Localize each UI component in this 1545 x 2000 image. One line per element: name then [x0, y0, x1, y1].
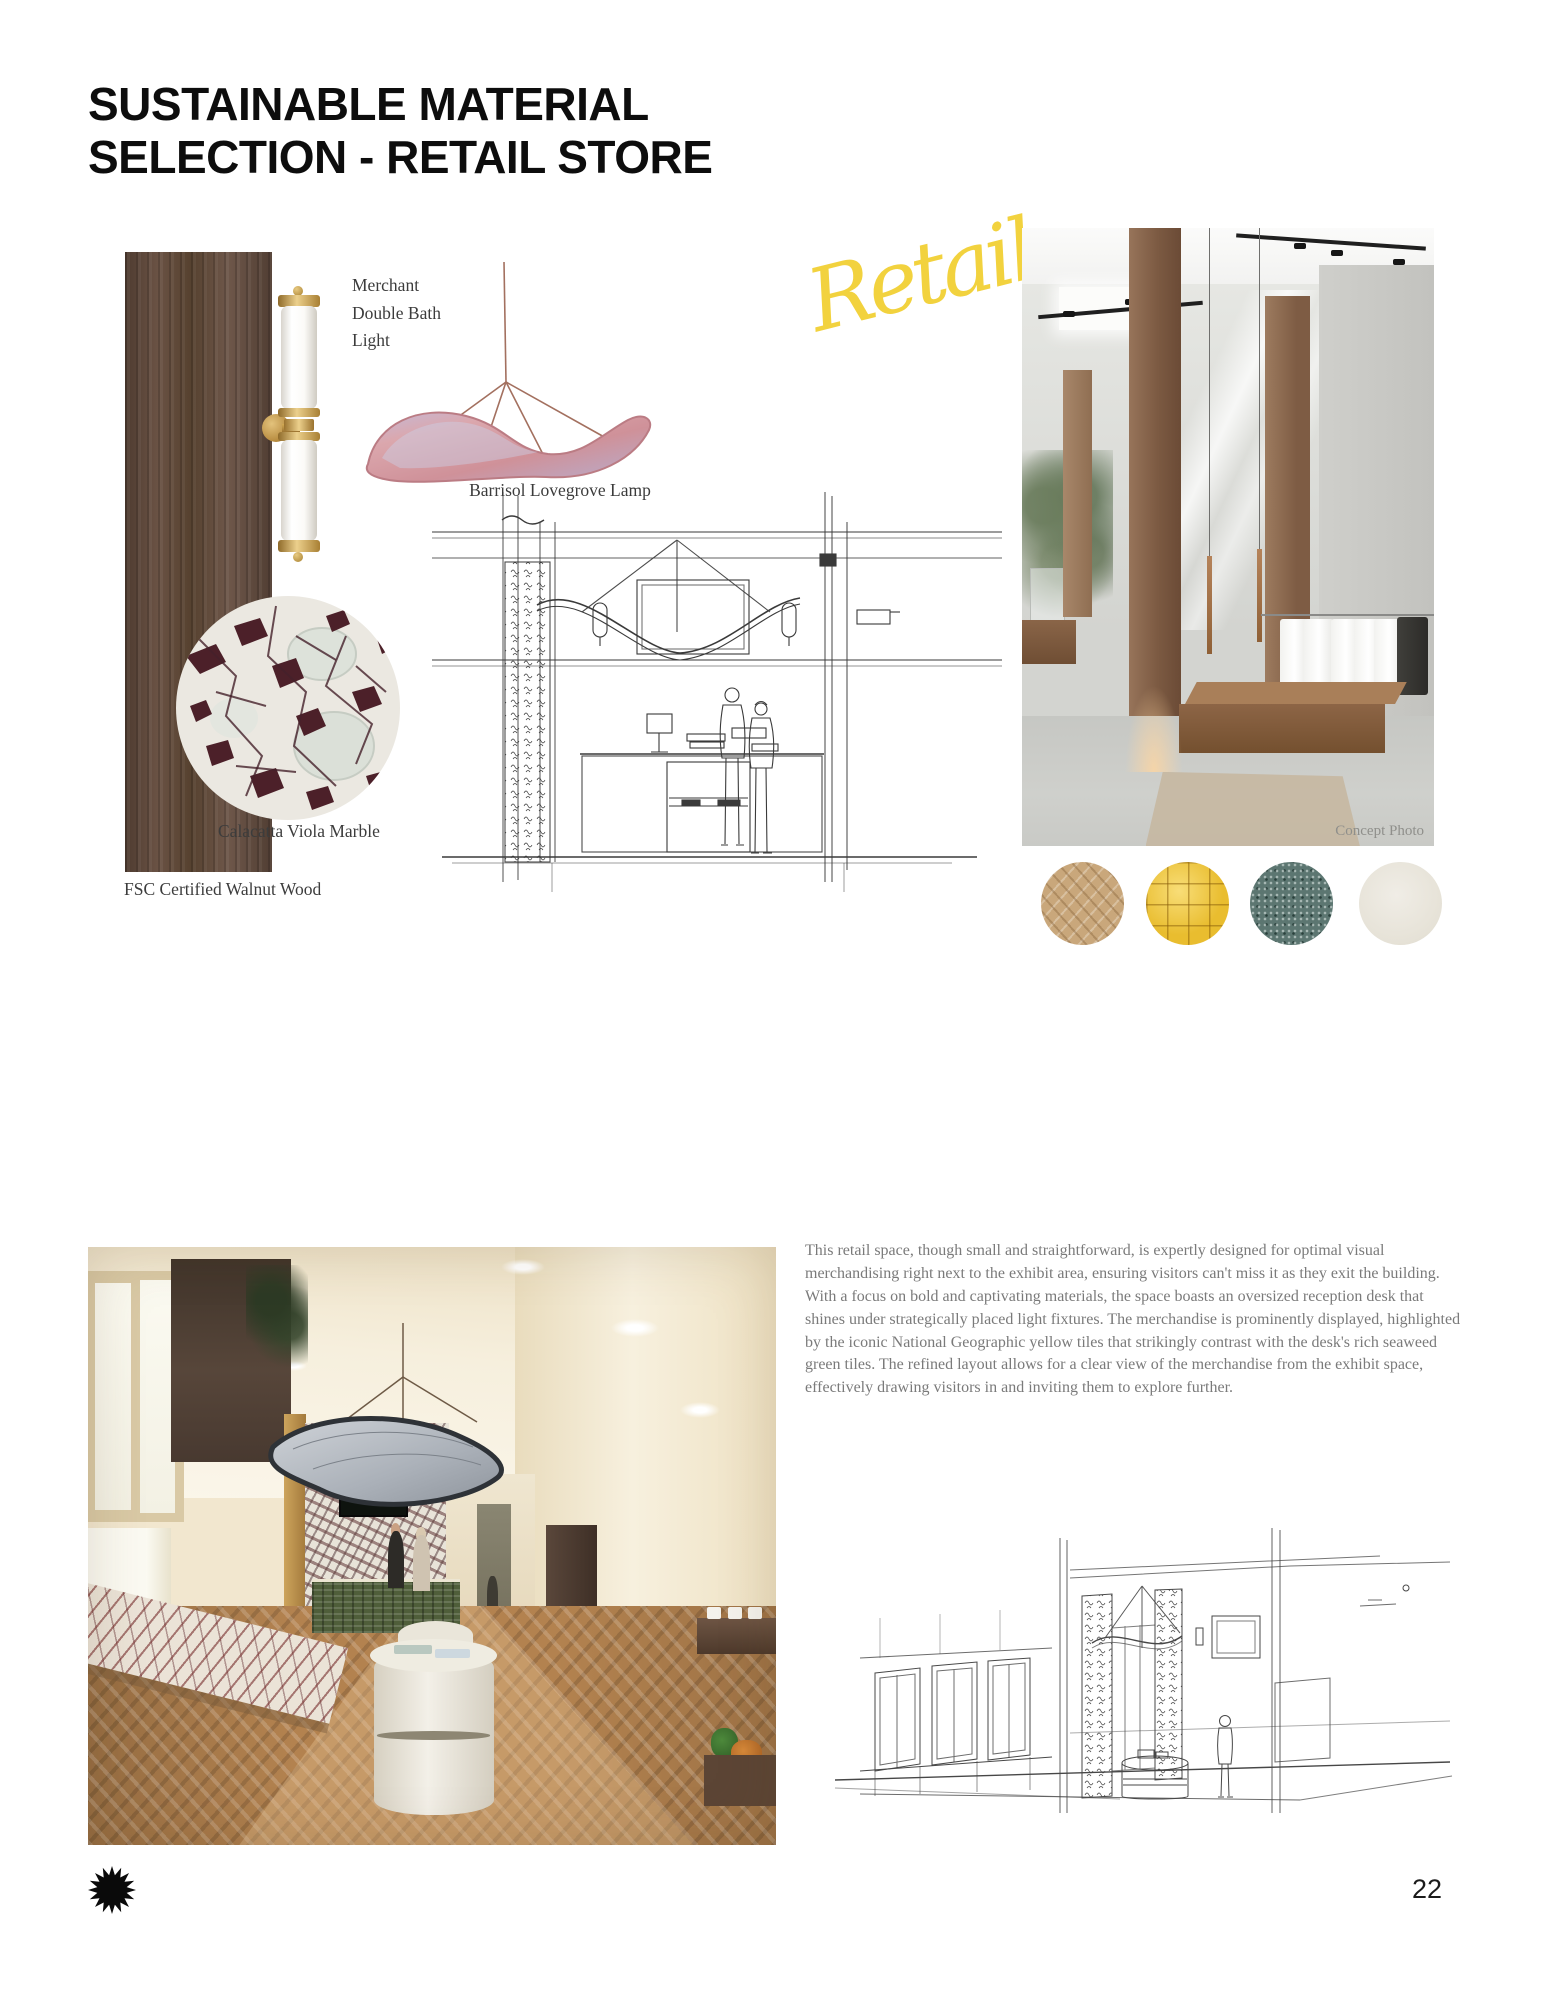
spot-light	[1393, 259, 1405, 265]
concept-photo-caption: Concept Photo	[1335, 823, 1424, 840]
perspective-sketch	[820, 1478, 1465, 1813]
wood-pendant-light	[1257, 549, 1262, 642]
swatch-off-white-plaster	[1359, 862, 1442, 945]
render-vignette	[88, 1247, 776, 1845]
pendant-lamp-image	[352, 258, 662, 493]
swatch-seaweed-green	[1250, 862, 1333, 945]
page-number: 22	[1392, 1874, 1462, 1905]
pendant-cable	[1209, 228, 1210, 556]
photo-uplight-glow	[1125, 685, 1183, 772]
swatch-yellow-tiles	[1146, 862, 1229, 945]
interior-render	[88, 1247, 776, 1845]
photo-rug	[1146, 772, 1360, 846]
wood-pendant-light	[1207, 556, 1212, 655]
clothes-rail	[1261, 614, 1434, 616]
hanging-shirt	[1304, 619, 1334, 690]
concept-photo: Concept Photo	[1022, 228, 1434, 846]
photo-bench-left	[1022, 620, 1076, 663]
wood-label: FSC Certified Walnut Wood	[124, 876, 424, 904]
wall-light-glass-tube	[281, 440, 317, 541]
double-bath-wall-light	[262, 286, 338, 568]
wall-light-glass-tube	[281, 306, 317, 409]
photo-background-column	[1063, 370, 1092, 617]
portfolio-page: SUSTAINABLE MATERIAL SELECTION - RETAIL …	[0, 0, 1545, 2000]
wall-light-coupling	[284, 419, 314, 431]
spot-light	[1063, 311, 1075, 317]
photo-bench	[1179, 704, 1385, 753]
page-title-line2: SELECTION - RETAIL STORE	[88, 131, 712, 184]
spot-light	[1331, 250, 1343, 256]
spot-light	[1294, 243, 1306, 249]
wall-light-cap	[278, 540, 320, 552]
wall-light-cap	[278, 408, 320, 417]
marble-sample	[176, 596, 400, 820]
pendant-cable	[1259, 228, 1260, 549]
starburst-icon	[88, 1866, 136, 1914]
elevation-sketch	[432, 462, 1002, 892]
description-paragraph: This retail space, though small and stra…	[805, 1240, 1462, 1400]
page-title-line1: SUSTAINABLE MATERIAL	[88, 78, 712, 131]
page-title: SUSTAINABLE MATERIAL SELECTION - RETAIL …	[88, 78, 712, 185]
swatch-herringbone-oak	[1041, 862, 1124, 945]
wall-light-finial	[293, 552, 303, 562]
photo-bench-top	[1185, 682, 1407, 704]
